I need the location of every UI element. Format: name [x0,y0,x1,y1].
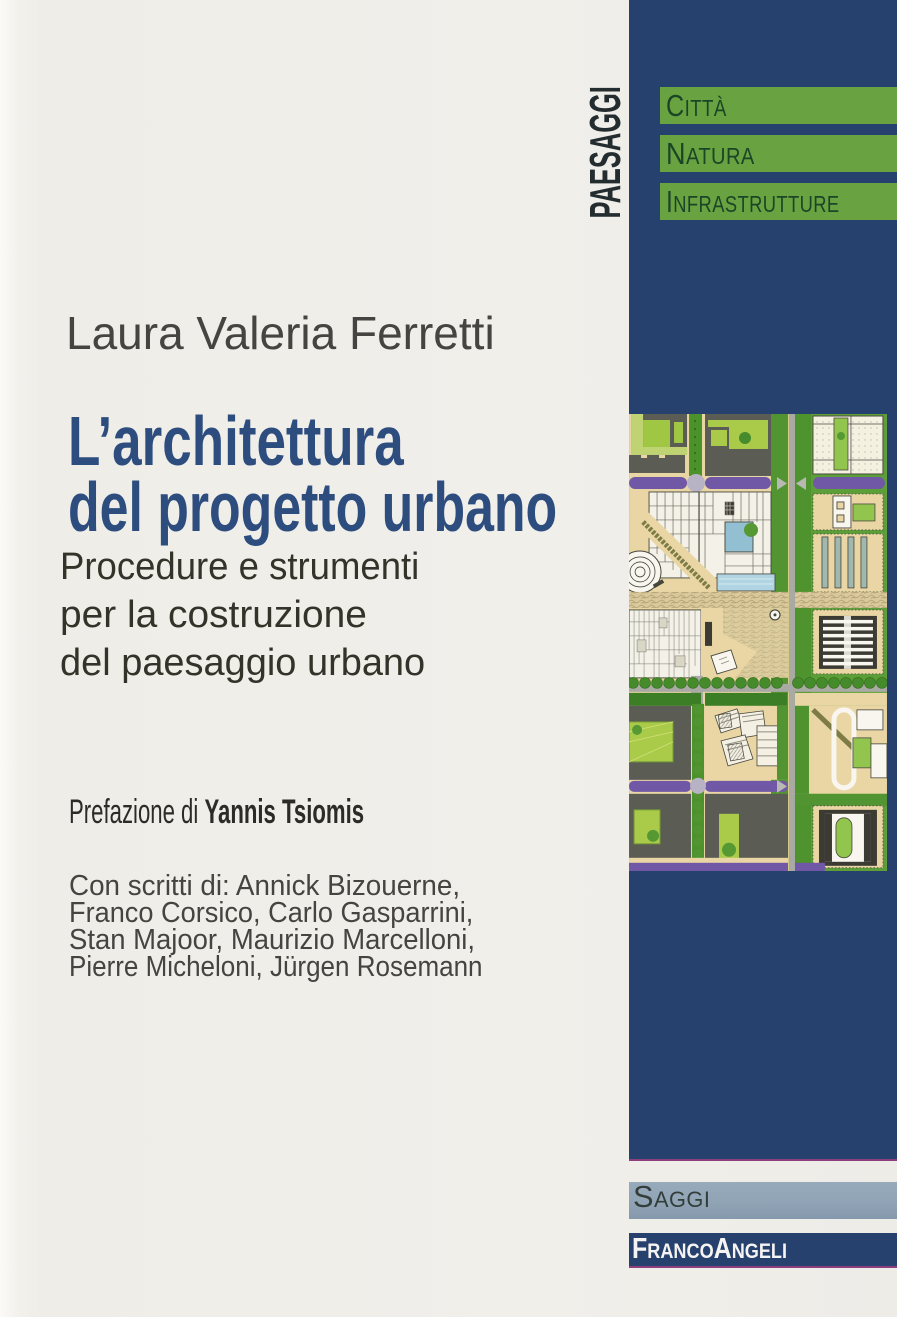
svg-text:PAESAGGI: PAESAGGI [579,86,629,218]
